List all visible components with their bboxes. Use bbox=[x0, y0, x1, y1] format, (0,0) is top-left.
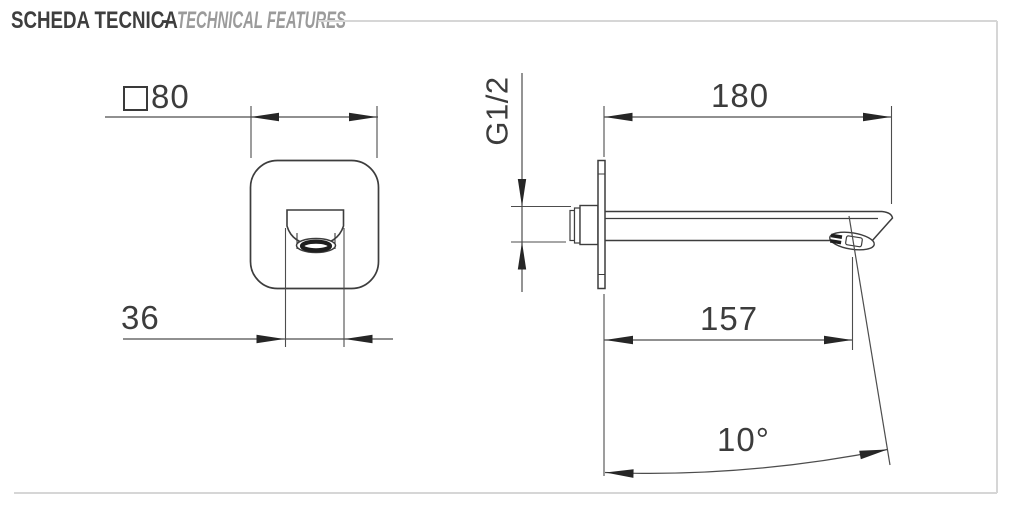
dim-stream-angle-label: 10° bbox=[717, 423, 770, 456]
side-inlet-pipe bbox=[570, 206, 598, 245]
dim-inlet-thread-label: G1/2 bbox=[481, 76, 514, 145]
dim-spout-width-label: 36 bbox=[121, 301, 160, 334]
dimension-plate-size-80 bbox=[105, 106, 378, 158]
dim-outlet-projection-label: 157 bbox=[700, 302, 758, 335]
side-plate bbox=[598, 161, 605, 289]
square-section-icon bbox=[123, 86, 148, 111]
side-view-drawing bbox=[511, 73, 893, 478]
dimension-spout-length-180 bbox=[604, 106, 892, 204]
dim-plate-size-label: 80 bbox=[151, 80, 190, 113]
technical-sheet-page: SCHEDA TECNICA - TECHNICAL FEATURES bbox=[0, 0, 1024, 518]
stream-angle-reference-line bbox=[849, 216, 890, 465]
dim-spout-length-label: 180 bbox=[711, 79, 769, 112]
